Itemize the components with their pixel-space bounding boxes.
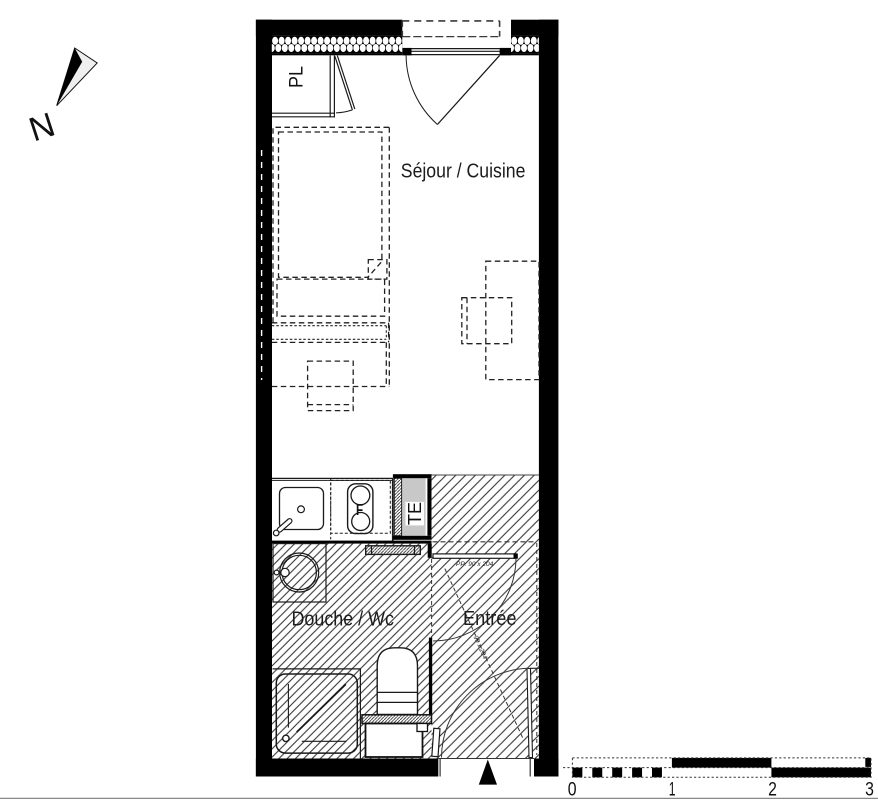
svg-text:Douche / Wc: Douche / Wc (292, 607, 395, 630)
svg-text:PL: PL (286, 66, 307, 88)
svg-text:Séjour / Cuisine: Séjour / Cuisine (401, 159, 526, 182)
svg-text:3: 3 (865, 780, 874, 800)
svg-text:F: F (356, 502, 363, 519)
svg-text:0: 0 (568, 780, 577, 800)
svg-text:2: 2 (768, 780, 777, 800)
svg-text:1: 1 (669, 780, 676, 800)
svg-text:TE: TE (404, 502, 425, 525)
svg-text:PP: 90 x 204: PP: 90 x 204 (456, 561, 494, 568)
svg-text:Entrée: Entrée (463, 607, 517, 630)
